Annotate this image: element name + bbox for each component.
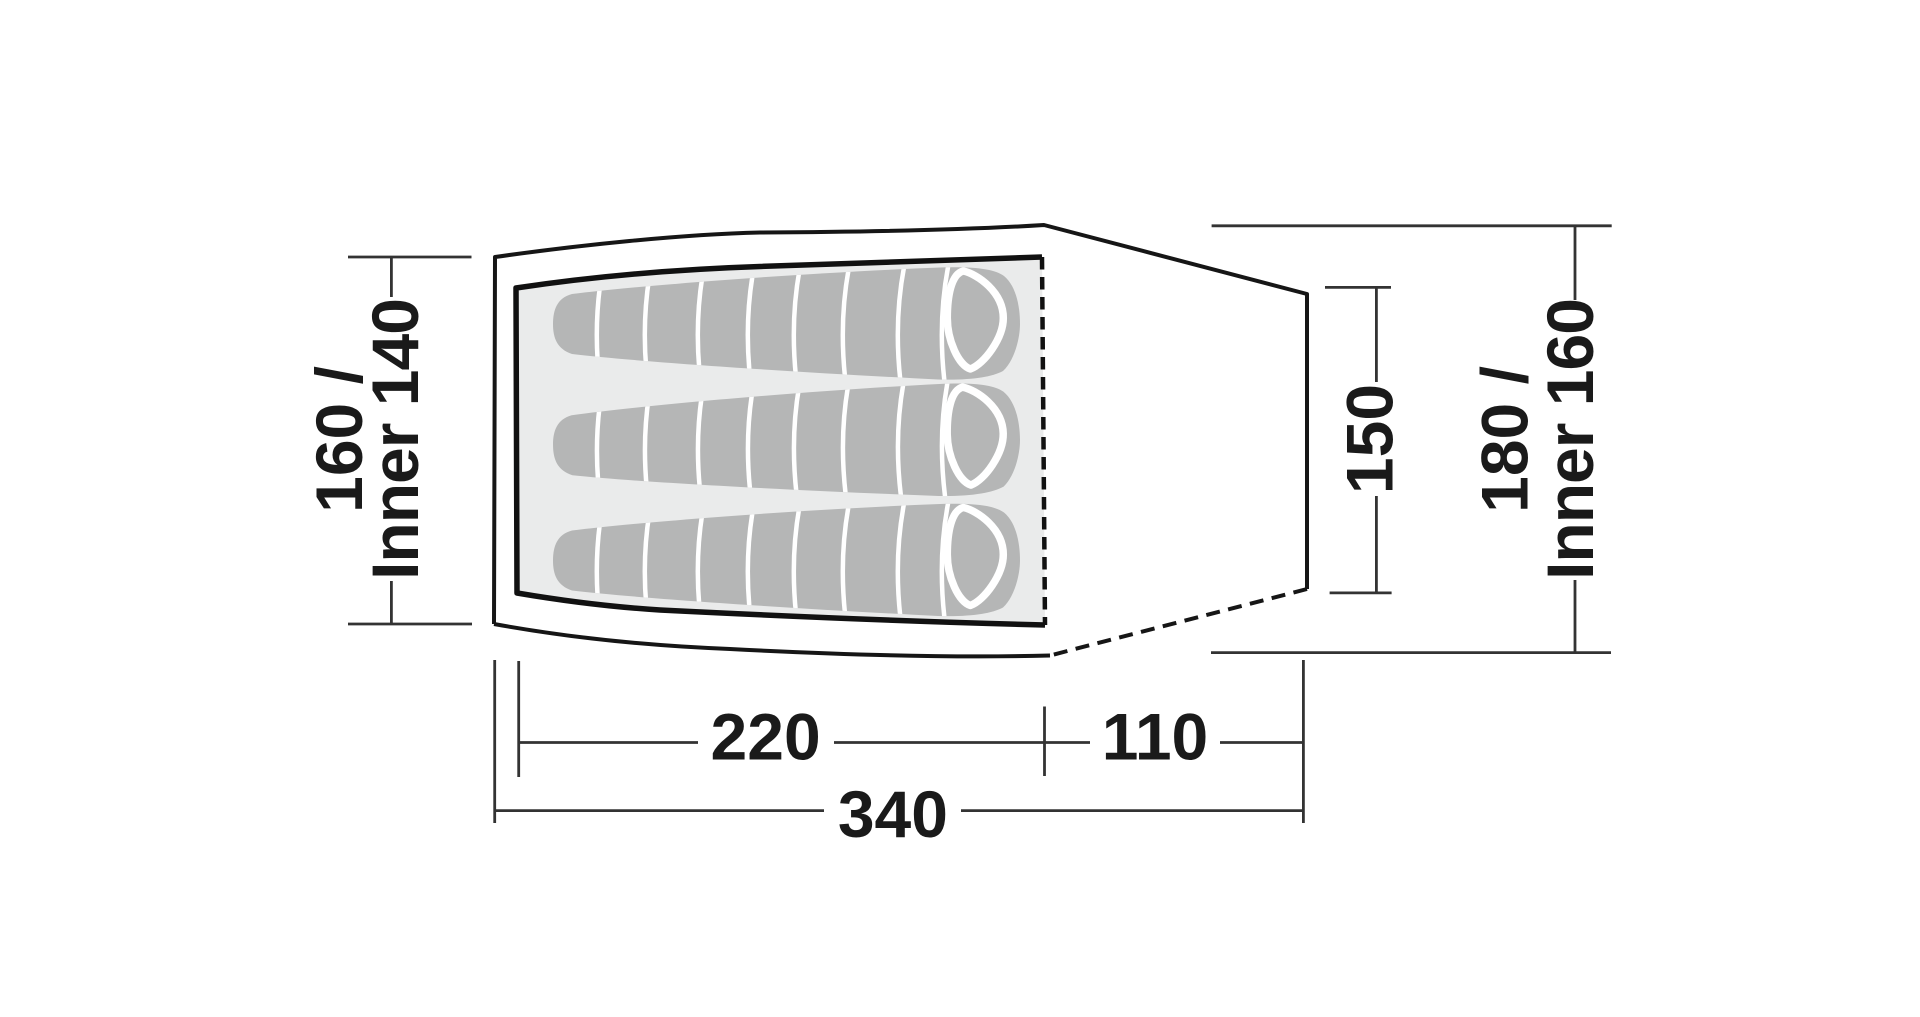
svg-text:150: 150: [1333, 384, 1407, 494]
svg-text:220: 220: [711, 700, 821, 774]
svg-text:180 /: 180 /: [1467, 366, 1541, 513]
svg-text:110: 110: [1102, 700, 1208, 774]
svg-text:Inner 140: Inner 140: [358, 299, 432, 580]
svg-text:Inner 160: Inner 160: [1533, 299, 1607, 580]
svg-text:340: 340: [838, 777, 948, 851]
